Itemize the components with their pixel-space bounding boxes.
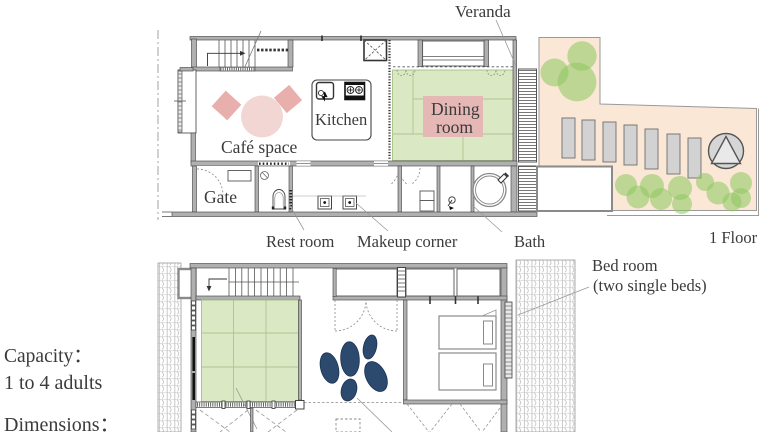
svg-text:room: room (436, 117, 473, 137)
svg-text:(two single beds): (two single beds) (593, 276, 707, 295)
svg-text:Makeup corner: Makeup corner (357, 232, 458, 251)
svg-text:Bed room: Bed room (592, 256, 658, 275)
svg-text:Kitchen: Kitchen (315, 110, 367, 129)
svg-text:1 Floor: 1 Floor (709, 228, 758, 247)
svg-text:Capacity：: Capacity： (4, 346, 93, 367)
svg-text:Bath: Bath (514, 232, 546, 251)
svg-text:1 to 4 adults: 1 to 4 adults (4, 372, 103, 394)
svg-text:Dining: Dining (431, 99, 480, 119)
svg-text:Rest room: Rest room (266, 232, 334, 251)
svg-text:Gate: Gate (204, 187, 237, 207)
svg-text:Café space: Café space (221, 137, 298, 157)
svg-text:Veranda: Veranda (455, 2, 511, 21)
svg-text:Dimensions：: Dimensions： (4, 414, 120, 432)
